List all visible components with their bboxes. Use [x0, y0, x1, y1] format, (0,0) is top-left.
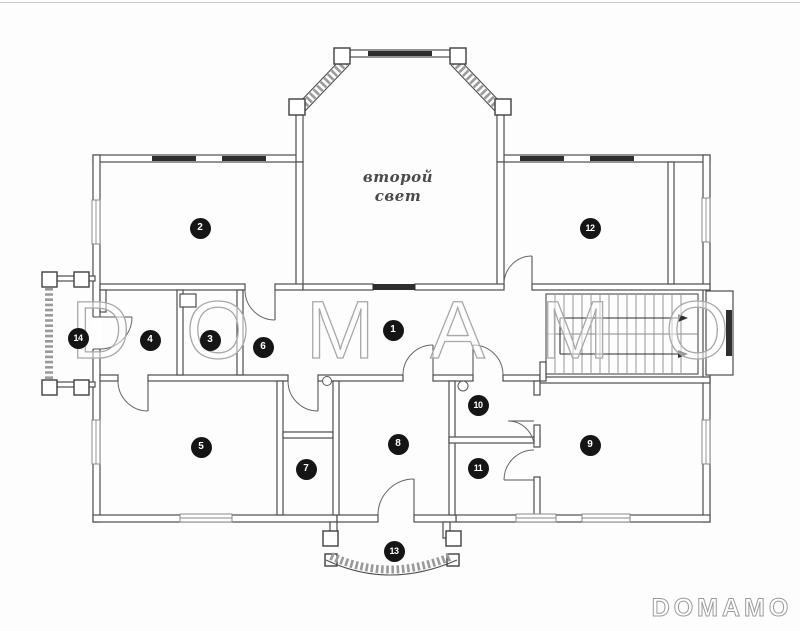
watermark-corner-logo: DOMAMO: [652, 594, 793, 622]
bay-window: [289, 48, 511, 162]
floor-plan-drawing: второй свет DOMAMO DOMAMO: [0, 0, 800, 631]
watermark-center: DOMAMO: [71, 285, 785, 376]
central-room-label-line2: свет: [375, 187, 421, 205]
central-room-label-line1: второй: [363, 168, 433, 186]
bottom-porch: [323, 522, 461, 575]
bay-top-window: [368, 51, 432, 56]
porch-steps: [331, 556, 452, 570]
floor-plan-image: второй свет DOMAMO DOMAMO 12345678910111…: [0, 0, 800, 631]
